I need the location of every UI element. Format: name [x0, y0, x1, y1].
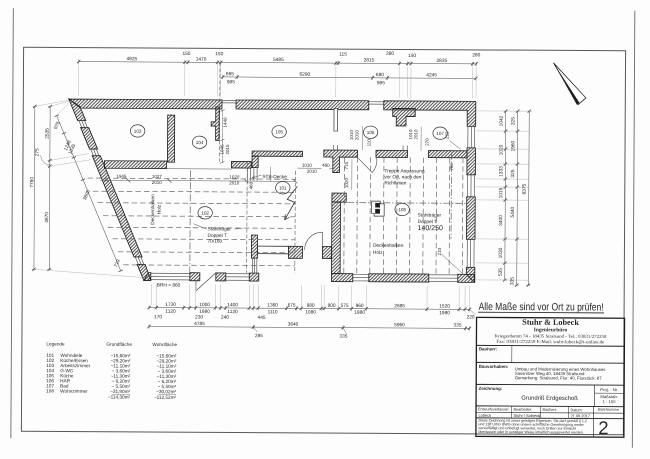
svg-text:108: 108: [398, 207, 406, 212]
svg-text:1042: 1042: [499, 115, 505, 126]
svg-text:4970: 4970: [44, 212, 50, 223]
svg-text:335: 335: [339, 334, 347, 340]
svg-text:285: 285: [255, 333, 263, 339]
svg-text:2835: 2835: [436, 58, 447, 64]
svg-text:240: 240: [221, 315, 229, 321]
svg-text:223: 223: [445, 131, 450, 139]
svg-text:1120: 1120: [227, 309, 238, 315]
svg-text:4245: 4245: [426, 72, 437, 78]
svg-text:1010: 1010: [408, 129, 413, 140]
svg-text:102: 102: [201, 211, 209, 216]
svg-text:1730: 1730: [165, 302, 176, 308]
svg-text:107: 107: [436, 131, 444, 136]
svg-text:1020: 1020: [498, 144, 504, 155]
svg-text:8375: 8375: [522, 183, 528, 194]
svg-text:680: 680: [376, 72, 384, 78]
svg-text:1520: 1520: [439, 303, 450, 309]
svg-text:Doppel T: Doppel T: [208, 233, 227, 239]
svg-text:2015: 2015: [225, 144, 230, 155]
svg-text:1080: 1080: [305, 309, 316, 315]
svg-text:4785: 4785: [194, 321, 205, 327]
svg-text:1027: 1027: [152, 174, 163, 179]
svg-text:275: 275: [34, 148, 40, 156]
svg-text:535: 535: [498, 268, 504, 276]
svg-text:1980: 1980: [439, 310, 450, 316]
svg-text:70/160: 70/160: [207, 239, 222, 245]
svg-text:Ingenieurbüro: Ingenieurbüro: [534, 327, 568, 333]
svg-text:1960: 1960: [510, 140, 516, 151]
svg-text:985: 985: [377, 80, 385, 86]
svg-text:108: 108: [46, 389, 54, 394]
svg-text:1440: 1440: [223, 117, 228, 128]
svg-text:445: 445: [258, 315, 266, 321]
svg-text:270: 270: [425, 138, 430, 146]
svg-text:Lobeck: Lobeck: [478, 413, 491, 418]
svg-text:210: 210: [437, 247, 442, 255]
svg-text:1045: 1045: [219, 144, 224, 155]
svg-text:Blatt-Nummer: Blatt-Nummer: [598, 408, 620, 412]
svg-text:110: 110: [367, 139, 372, 147]
svg-text:106: 106: [367, 130, 375, 135]
svg-text:170: 170: [154, 314, 162, 320]
svg-text:2685: 2685: [394, 303, 405, 309]
svg-text:5485: 5485: [273, 57, 284, 63]
svg-text:1000: 1000: [199, 302, 210, 308]
svg-text:Alle Maße sind vor Ort zu prüf: Alle Maße sind vor Ort zu prüfen!: [479, 301, 604, 314]
svg-text:5960: 5960: [394, 322, 405, 328]
svg-text:2010: 2010: [354, 130, 359, 141]
svg-text:~30,02m²: ~30,02m²: [156, 389, 176, 394]
svg-text:4925: 4925: [126, 56, 137, 62]
svg-text:1010: 1010: [349, 130, 354, 141]
svg-text:230: 230: [195, 314, 203, 320]
svg-text:überlassen oder in sonstiger W: überlassen oder in sonstiger Weise inhal…: [478, 430, 583, 435]
svg-text:325: 325: [510, 117, 516, 125]
svg-text:105: 105: [275, 130, 283, 135]
svg-text:380: 380: [386, 51, 394, 57]
svg-text:2535: 2535: [45, 128, 51, 139]
svg-text:5440: 5440: [510, 206, 516, 217]
svg-text:103: 103: [134, 129, 142, 134]
svg-text:Bauherr:: Bauherr:: [543, 408, 558, 412]
svg-text:Richtlinien: Richtlinien: [384, 180, 406, 186]
svg-text:1020: 1020: [229, 174, 240, 179]
svg-text:Bauvorhaben:: Bauvorhaben:: [479, 364, 509, 369]
svg-text:1470: 1470: [196, 57, 207, 63]
svg-text:715: 715: [344, 161, 349, 169]
svg-text:3640: 3640: [288, 322, 299, 328]
svg-text:3805: 3805: [82, 189, 92, 201]
svg-text:1020: 1020: [344, 178, 349, 189]
svg-text:675: 675: [288, 303, 296, 309]
svg-text:800: 800: [328, 303, 336, 309]
svg-text:325: 325: [510, 169, 516, 177]
svg-text:21.09.2017: 21.09.2017: [570, 413, 590, 418]
svg-text:1 : 100: 1 : 100: [603, 399, 617, 404]
svg-text:Bauherr:: Bauherr:: [479, 346, 498, 351]
svg-text:Stuhr / Sobieraj: Stuhr / Sobieraj: [513, 413, 540, 418]
svg-text:101: 101: [279, 186, 287, 191]
svg-text:150: 150: [215, 51, 223, 57]
svg-text:Datum:: Datum:: [571, 408, 583, 412]
svg-text:Deckenbalken: Deckenbalken: [150, 194, 156, 225]
svg-text:Zeichnung:: Zeichnung:: [479, 386, 503, 391]
svg-text:980: 980: [307, 303, 315, 309]
svg-text:115: 115: [339, 52, 347, 58]
svg-text:Entwurfsverfasser:: Entwurfsverfasser:: [478, 407, 509, 411]
svg-text:7780: 7780: [29, 177, 35, 188]
svg-text:985: 985: [227, 79, 235, 85]
svg-text:1015: 1015: [498, 187, 504, 198]
svg-text:150: 150: [408, 53, 416, 59]
svg-text:Stuhr & Lobeck: Stuhr & Lobeck: [522, 318, 579, 327]
svg-text:BRH = 860: BRH = 860: [157, 283, 181, 289]
svg-text:~112,52m²: ~112,52m²: [154, 395, 177, 400]
svg-text:Fax: 03831/272259 E-Mail: stu: Fax: 03831/272259 E-Mail: stuhr-lobeck@t…: [496, 339, 604, 345]
svg-text:Proj. - Nr.: Proj. - Nr.: [600, 387, 618, 392]
svg-text:Gemarkung: Stralsund, Flur: 40: Gemarkung: Stralsund, Flur: 40, Flurstüc…: [515, 375, 603, 381]
svg-text:Legende: Legende: [46, 341, 65, 346]
svg-text:2010: 2010: [307, 169, 318, 174]
svg-text:1980: 1980: [199, 309, 210, 315]
svg-text:335: 335: [453, 323, 461, 329]
svg-text:~114,30m²: ~114,30m²: [108, 395, 131, 400]
svg-text:220: 220: [467, 314, 475, 320]
svg-text:vor Ort, nach den: vor Ort, nach den: [384, 174, 421, 180]
svg-text:3400: 3400: [498, 215, 504, 226]
svg-text:~31,80m²: ~31,80m²: [110, 389, 130, 394]
svg-text:Grundriß Erdgeschoß: Grundriß Erdgeschoß: [521, 396, 578, 402]
svg-text:140/250: 140/250: [418, 225, 443, 232]
svg-text:1400: 1400: [227, 302, 238, 308]
svg-text:2010: 2010: [413, 129, 418, 140]
svg-text:STB-Decke: STB-Decke: [262, 174, 287, 180]
svg-text:1120: 1120: [165, 309, 176, 315]
svg-text:Holz: Holz: [157, 204, 163, 214]
svg-text:1360: 1360: [267, 302, 278, 308]
svg-text:460: 460: [249, 181, 254, 189]
svg-text:Holz: Holz: [373, 250, 383, 256]
svg-text:460: 460: [322, 163, 330, 168]
svg-text:335: 335: [510, 277, 516, 285]
svg-text:Wohnzimmer: Wohnzimmer: [60, 389, 88, 394]
svg-text:Stahlträger: Stahlträger: [418, 213, 442, 219]
svg-text:1030: 1030: [498, 247, 504, 258]
svg-text:1010: 1010: [302, 163, 313, 168]
svg-text:150: 150: [182, 51, 190, 57]
svg-text:1110: 1110: [268, 309, 278, 315]
svg-text:1333: 1333: [498, 166, 504, 177]
svg-text:665: 665: [226, 71, 234, 77]
svg-text:280: 280: [472, 52, 480, 58]
svg-text:Grundfläche: Grundfläche: [106, 342, 132, 347]
svg-text:2: 2: [598, 417, 608, 438]
svg-text:960: 960: [356, 303, 364, 309]
svg-text:104: 104: [196, 140, 204, 145]
svg-text:2815: 2815: [364, 58, 375, 64]
svg-text:Bearbeiter:: Bearbeiter:: [514, 408, 533, 412]
svg-text:975: 975: [53, 120, 62, 130]
svg-text:719: 719: [113, 258, 122, 268]
svg-text:575: 575: [341, 303, 349, 309]
svg-text:6290: 6290: [299, 72, 310, 78]
svg-text:1945: 1945: [116, 174, 127, 179]
svg-text:1980: 1980: [354, 310, 365, 316]
svg-text:Deckenbalken: Deckenbalken: [373, 243, 404, 249]
svg-text:765: 765: [449, 162, 454, 170]
svg-text:Treppe Anpassung: Treppe Anpassung: [384, 168, 424, 174]
svg-text:Stahlträger: Stahlträger: [208, 226, 232, 232]
svg-text:Wohnfläche: Wohnfläche: [152, 342, 177, 347]
